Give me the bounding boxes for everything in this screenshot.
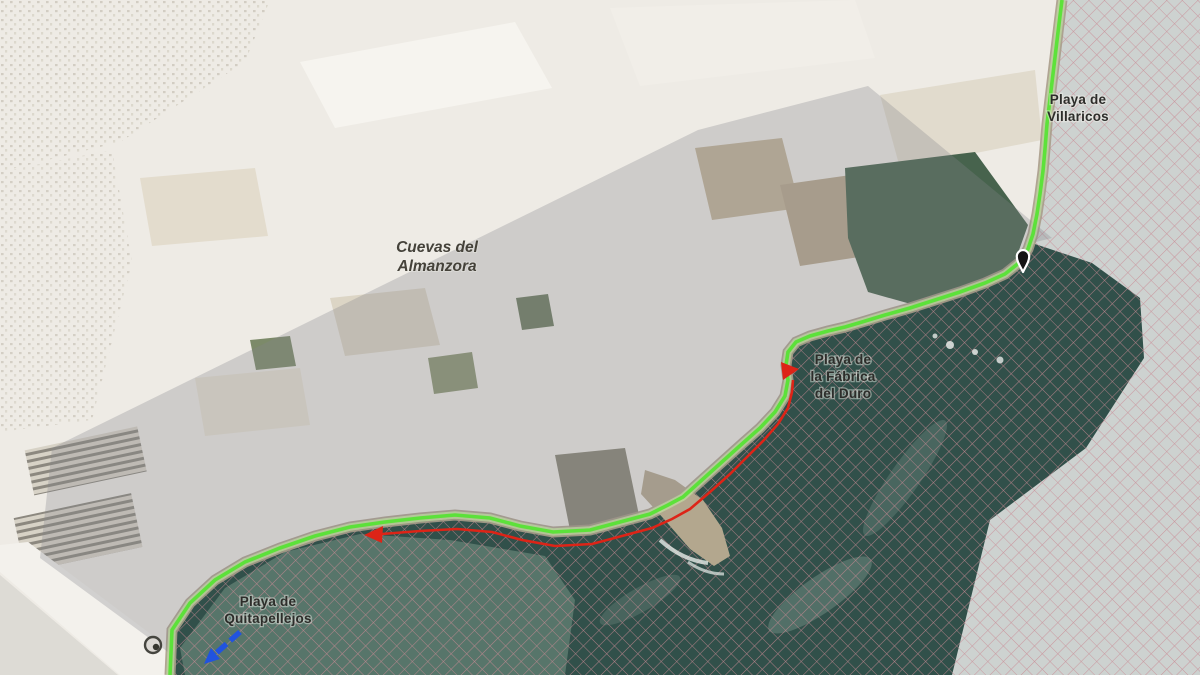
villaricos-label-line1: Playa de: [1050, 92, 1107, 107]
fabrica-label-line1: Playa de: [815, 352, 872, 367]
quitapellejos-label-line2: Quitapellejos: [224, 611, 311, 626]
villaricos-label-line2: Villaricos: [1047, 109, 1109, 124]
quitapellejos-label-line1: Playa de: [240, 594, 297, 609]
map-svg: Cuevas del Almanzora Playa de Villaricos…: [0, 0, 1200, 675]
satellite-map-canvas[interactable]: Cuevas del Almanzora Playa de Villaricos…: [0, 0, 1200, 675]
fabrica-label-line2: la Fábrica: [810, 369, 875, 384]
fabrica-label-line3: del Duro: [815, 386, 871, 401]
municipality-label-line1: Cuevas del: [396, 239, 479, 256]
municipality-label-line2: Almanzora: [396, 258, 477, 275]
poi-circle-marker[interactable]: [145, 637, 161, 653]
